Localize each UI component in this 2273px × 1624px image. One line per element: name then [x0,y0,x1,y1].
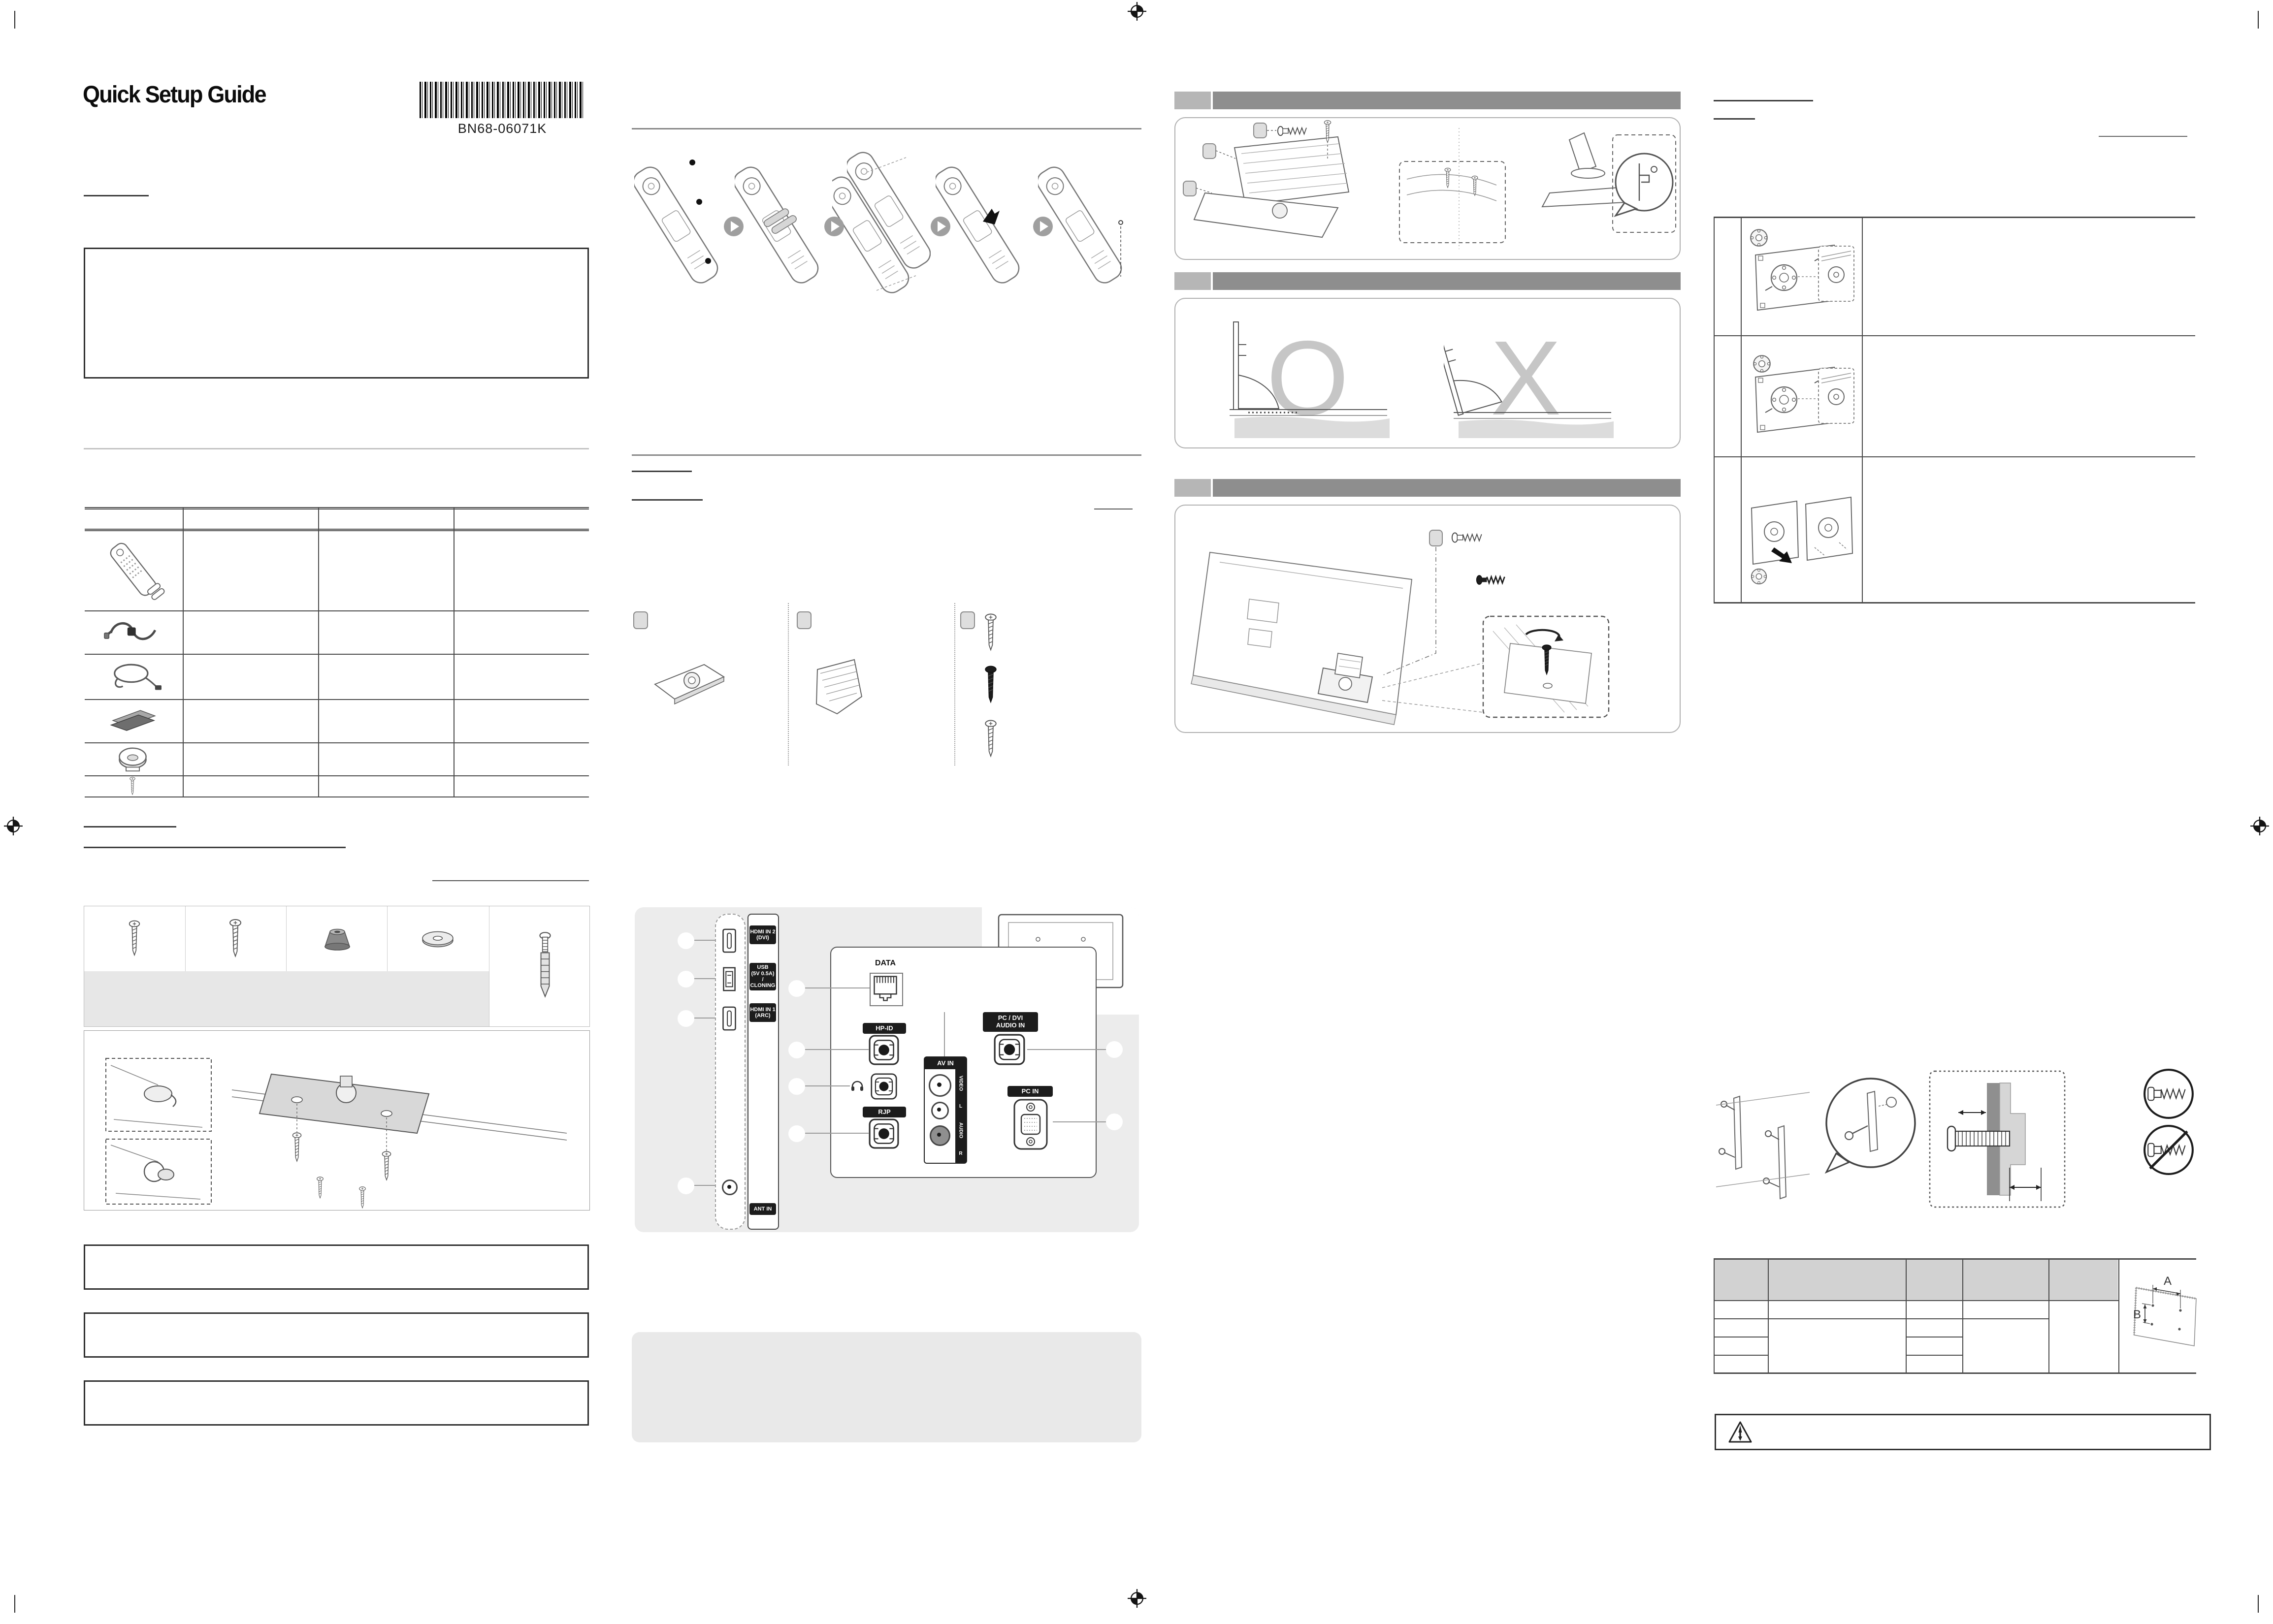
screw-short-icon [128,920,141,957]
pc-in-label: PC IN [1007,1086,1053,1097]
rubber-spacer-icon [320,927,355,952]
anchor-screw-icon [536,932,554,1001]
power-cord-icon [103,616,163,646]
callout-dot [678,1178,694,1194]
dim-a-label: A [2164,1274,2172,1288]
stand-attach-figure [1175,506,1680,732]
av-in-label: AV IN [925,1057,966,1069]
rjp-label-text: RJP [878,1109,890,1116]
stand-screw-icon [981,613,1001,652]
crop-tick [14,11,15,29]
callout-dot [678,1010,694,1027]
wallmount-kit-subheading-rule [1714,118,1755,120]
hdmi2-label-line1: HDMI IN 2 [750,929,775,935]
registration-mark-icon [1128,1589,1146,1608]
hpid-label: HP-ID [863,1023,906,1034]
divider-rule [84,448,589,449]
av-in-block: AV IN VIDEO L AUDIO R [924,1056,967,1164]
incorrect-mark-letter: X [1491,318,1561,437]
remote-step3-figure [832,143,931,310]
callout-dot [788,1078,805,1095]
barcode-icon [420,82,585,118]
connection-note-box [632,1332,1141,1442]
warranty-card-icon [106,705,162,737]
note-rule [2099,136,2187,137]
page-title: Quick Setup Guide [83,81,266,108]
callout-dot [788,1125,805,1142]
warning-triangle-icon [1728,1421,1753,1443]
section2-bar-accent [1174,272,1211,290]
rjp-label: RJP [863,1107,906,1117]
correct-screw-figure [2142,1067,2195,1120]
callout-dot [1106,1114,1123,1130]
adapter-table [1714,217,2195,604]
part-a-badge [633,611,648,629]
registration-mark-icon [2250,817,2269,835]
barcode-text: BN68-06071K [420,121,585,136]
adapter-row3-figure [1746,474,1857,592]
wallmount-kit-heading-rule [1714,100,1813,101]
adapter-row2-figure [1746,349,1857,447]
section3-bar-accent [1174,479,1211,497]
part-b-badge [797,611,812,629]
arrow-right-circle-icon [1032,216,1054,237]
note-rule [432,880,589,881]
vesa-dimension-figure: A B [2122,1273,2206,1364]
adapter-row1-figure [1746,226,1857,325]
hpid-label-text: HP-ID [876,1025,893,1032]
stand-parts-subheading-rule [632,499,703,501]
video-label: VIDEO [958,1076,964,1091]
section2-bar [1213,272,1681,290]
audio-left-label: L [959,1104,962,1109]
cable-icon [103,659,163,693]
crop-tick [14,1595,15,1613]
vesa-table-header [1715,1260,2118,1300]
registration-mark-icon [4,817,23,835]
note-box-3 [84,1380,589,1426]
hdmi1-label-line1: HDMI IN 1 [750,1007,775,1013]
section-heading-rule [84,195,149,196]
data-port-label: DATA [855,959,916,968]
washer-icon [420,929,455,950]
audio-right-label: R [959,1151,962,1156]
hdmi2-label: HDMI IN 2 (DVI) [749,925,776,944]
license-notice-box [84,248,589,379]
section1-bar [1213,92,1681,109]
callout-dot [936,995,953,1012]
arrow-right-circle-icon [930,216,951,237]
ant-in-label-text: ANT IN [754,1206,772,1212]
vga-connector-icon [1009,1099,1052,1150]
stand-screw-icon [981,720,1001,758]
side-panel-label-strip [747,914,779,1230]
note-rule [1094,509,1133,509]
arrow-right-circle-icon [823,216,845,237]
rj45-icon [871,974,900,1003]
headphone-icon [850,1079,865,1092]
callout-dot [788,980,805,997]
stand-assembly-figure [1175,118,1680,259]
crop-tick [2258,11,2259,29]
divider-rule [632,454,1141,456]
quick-setup-guide-page: Quick Setup Guide BN68-06071K [0,0,2273,1624]
remote-step2-figure [735,148,823,310]
part-c-badge [960,611,975,629]
screw-icon [126,777,139,796]
stand-guide-figure [808,650,872,724]
pcdvi-audio-label: PC / DVI AUDIO IN [983,1012,1038,1032]
av-in-side-labels: VIDEO L AUDIO R [955,1069,966,1163]
usb-label-line2: (5V 0.5A) [751,971,774,977]
stand-incorrect-figure: X [1444,316,1621,439]
callout-dot [678,932,694,949]
callout-dot [678,971,694,987]
fastener-parts-strip [84,906,590,1027]
rjp-jack-icon [869,1118,899,1149]
wallmount-heading-rule [84,826,176,828]
stand-assembly-box [1174,117,1681,260]
data-port [870,973,903,1006]
audio-label: AUDIO [958,1122,964,1138]
registration-mark-icon [1128,2,1146,21]
wall-crosssection-figure [1928,1069,2067,1209]
hdmi1-label: HDMI IN 1 (ARC) [749,1003,776,1022]
pcdvi-label-line1: PC / DVI [998,1015,1023,1022]
crop-tick [2258,1595,2259,1613]
stand-screw-black-icon [981,666,1001,704]
remote-control-icon [98,534,170,605]
usb-label: USB (5V 0.5A) / CLONING [749,963,776,990]
incorrect-screw-figure [2142,1123,2195,1177]
antenna-jack-pin [727,1185,731,1189]
pc-in-label-text: PC IN [1022,1088,1039,1095]
usb-label-line1: USB [757,964,768,970]
wall-bracket-figure [1716,1090,1815,1213]
headphone-jack-icon [871,1073,897,1100]
pcdvi-jack-icon [994,1034,1025,1065]
pcdvi-label-line2: AUDIO IN [996,1022,1025,1029]
warning-box [1715,1414,2211,1450]
callout-dot [788,1042,805,1058]
hpid-jack-icon [869,1035,899,1065]
hdmi1-label-line2: (ARC) [755,1013,770,1019]
parts-divider [954,603,955,765]
remote-step1-figure [634,148,723,310]
usb-label-line3: / CLONING [749,977,776,989]
screw-long-icon [228,915,243,962]
wall-magnifier-figure [1820,1076,1921,1179]
stand-base-figure [645,650,734,719]
stand-attach-box [1174,505,1681,733]
hdmi2-label-line2: (DVI) [756,935,769,941]
stand-ok-ng-box: O X [1174,298,1681,448]
ant-in-label: ANT IN [749,1203,776,1215]
hdmi-port-icon [721,927,738,954]
hdmi-port-icon [721,1005,738,1032]
callout-dot [1106,1041,1123,1058]
usb-port-icon [721,966,738,992]
note-box-2 [84,1312,589,1358]
arrow-right-circle-icon [723,216,745,237]
desk-fixing-diagram [84,1030,590,1210]
cable-holder-icon [110,745,156,774]
desk-fixing-figure [84,1031,589,1210]
section3-bar [1213,479,1681,497]
wallmount-subheading-rule [84,847,346,848]
parts-divider [788,603,789,765]
accessories-table [85,507,589,797]
dim-b-label: B [2133,1308,2141,1321]
section1-bar-accent [1174,92,1211,109]
stand-parts-heading-rule [632,471,692,472]
stand-correct-figure: O [1220,316,1397,439]
parts-strip-gray-band [84,971,489,1026]
note-box-1 [84,1244,589,1290]
divider-rule [632,128,1141,129]
